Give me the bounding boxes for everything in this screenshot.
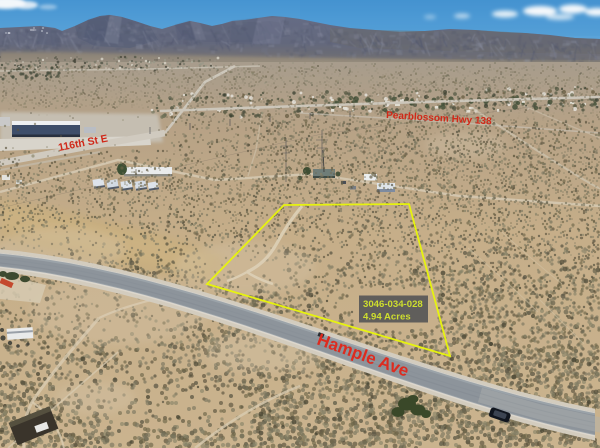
- svg-text:3046-034-028: 3046-034-028: [363, 299, 423, 310]
- svg-text:4.94 Acres: 4.94 Acres: [363, 312, 411, 323]
